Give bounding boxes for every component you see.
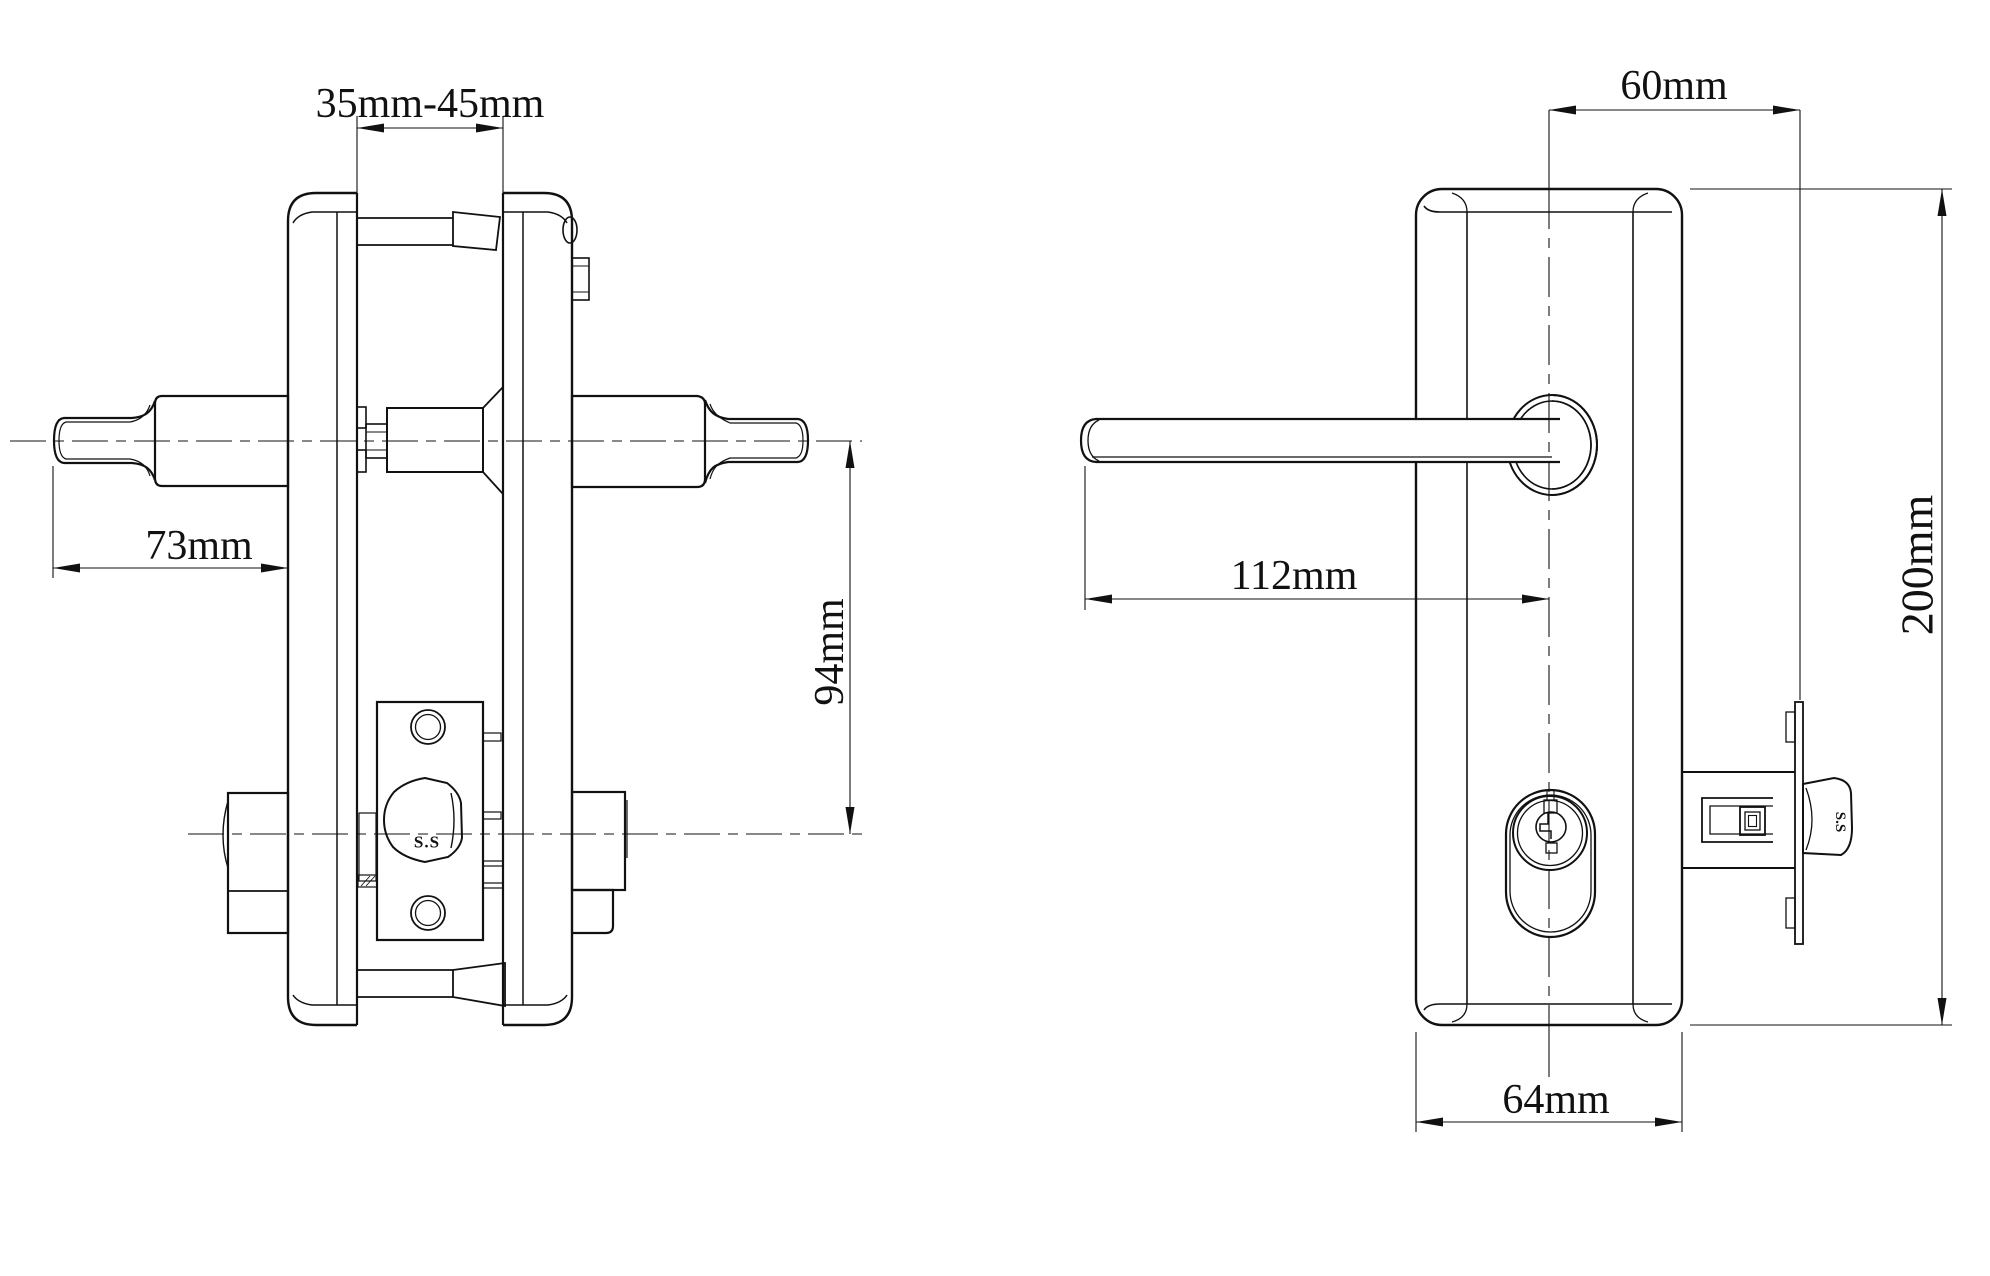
outside-cylinder-boss bbox=[223, 793, 288, 933]
dim-door-thickness: 35mm-45mm bbox=[316, 81, 545, 193]
left-plate bbox=[288, 193, 357, 1025]
bottom-screw-post bbox=[358, 963, 505, 1006]
top-screw-post bbox=[357, 212, 500, 250]
inside-cylinder-boss bbox=[572, 792, 627, 933]
faceplate-material-mark: S.S bbox=[414, 833, 440, 852]
side-tab bbox=[572, 258, 589, 300]
keyhole bbox=[1506, 790, 1595, 937]
dimensions: 35mm-45mm 73mm 94mm 60mm bbox=[53, 63, 1952, 1132]
dim-outside-handle-label: 73mm bbox=[145, 523, 253, 569]
dim-backset: 60mm bbox=[1549, 63, 1800, 700]
dim-outside-handle: 73mm bbox=[53, 466, 288, 578]
latch-faceplate-strip bbox=[1795, 702, 1803, 944]
side-section-view: S.S bbox=[54, 193, 808, 1025]
dim-backset-label: 60mm bbox=[1620, 63, 1728, 109]
drawing-sheet: S.S bbox=[0, 0, 1990, 1276]
latch-material-mark: S.S bbox=[1832, 812, 1848, 832]
dim-lever-length-label: 112mm bbox=[1231, 553, 1358, 599]
dim-lever-length: 112mm bbox=[1085, 466, 1549, 610]
dim-plate-height: 200mm bbox=[1690, 189, 1952, 1025]
front-view: S.S bbox=[1081, 189, 1852, 1025]
dim-plate-height-label: 200mm bbox=[1892, 495, 1943, 636]
dim-plate-width-label: 64mm bbox=[1502, 1077, 1610, 1123]
dim-handle-to-cylinder-label: 94mm bbox=[807, 598, 853, 706]
lock-faceplate bbox=[358, 702, 503, 940]
right-plate bbox=[503, 193, 589, 1025]
technical-drawing: S.S bbox=[0, 0, 1990, 1276]
edge-hole bbox=[563, 217, 577, 243]
dim-handle-to-cylinder: 94mm bbox=[807, 441, 855, 834]
latch-assembly: S.S bbox=[1682, 702, 1852, 944]
dim-door-thickness-label: 35mm-45mm bbox=[316, 81, 545, 127]
